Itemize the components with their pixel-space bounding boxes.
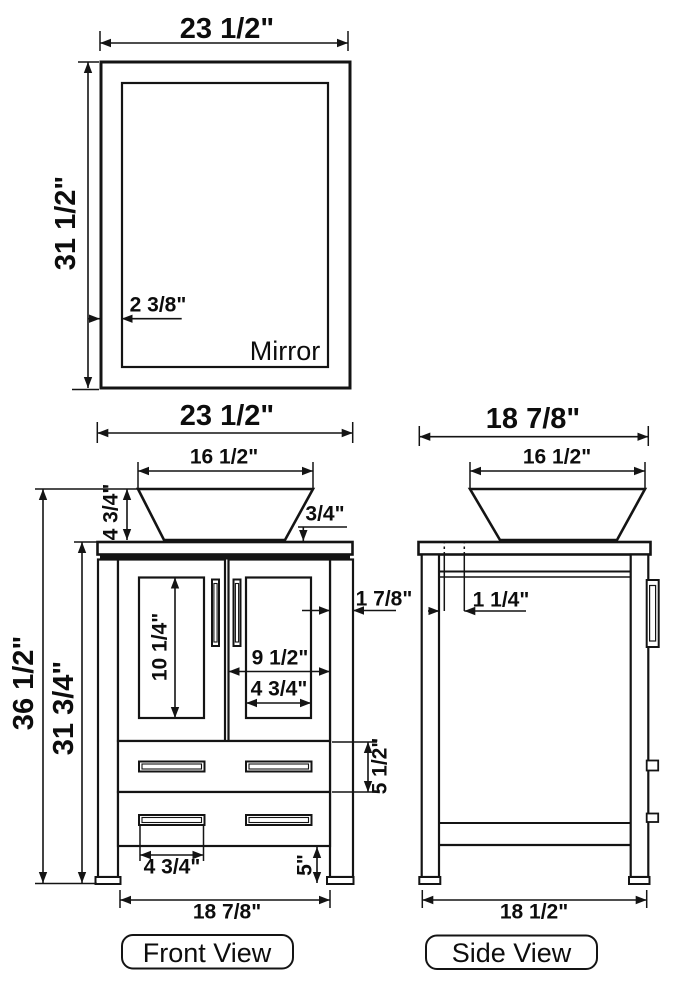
front-sink-width-dim: 16 1/2": [190, 446, 258, 469]
mirror-height-dim: 31 1/2": [50, 176, 82, 270]
front-panel-height-dim: 10 1/4": [149, 613, 172, 681]
mirror-label: Mirror: [250, 336, 320, 366]
front-drawer-height-dim: 5 1/2": [369, 738, 392, 795]
mirror-inner-frame: [122, 83, 328, 367]
side-view-caption: Side View: [452, 938, 572, 968]
right-leg-front: [330, 560, 353, 878]
vessel-sink-side: [470, 489, 645, 540]
front-base-width-dim: 18 7/8": [193, 901, 261, 924]
front-stile-width-dim: 1 7/8": [356, 588, 413, 611]
side-overall-depth-dim: 18 7/8": [486, 403, 580, 435]
front-cabinet-height-dim: 31 3/4": [48, 661, 80, 755]
right-foot-front: [327, 877, 354, 884]
front-drawer-handle-width-dim: 4 3/4": [144, 856, 201, 879]
drawer-handle-profile: [647, 814, 659, 823]
countertop-front: [98, 542, 353, 555]
mirror-width-dim: 23 1/2": [180, 13, 274, 45]
vanity-dimension-diagram: 23 1/2" 31 1/2" 2 3/8" Mirror 23 1/2" 16…: [0, 0, 678, 990]
mirror-drawing: 23 1/2" 31 1/2" 2 3/8" Mirror: [50, 13, 350, 390]
left-foot-front: [96, 877, 121, 884]
countertop-side: [419, 542, 651, 555]
drawer-handle-inner: [142, 818, 202, 823]
side-view-drawing: 18 7/8" 16 1/2" 1 1/4" 18 1/2": [419, 403, 659, 969]
front-countertop-thickness-dim: 3/4": [305, 503, 344, 526]
front-view-drawing: 23 1/2" 16 1/2" 4 3/4" 3/4": [8, 400, 412, 969]
side-back-inset-dim: 1 1/4": [473, 589, 530, 612]
right-door-handle-inner: [235, 584, 238, 643]
left-door-handle-inner: [214, 584, 217, 643]
side-sink-depth-dim: 16 1/2": [523, 446, 591, 469]
back-foot-side: [419, 877, 440, 884]
side-base-depth-dim: 18 1/2": [500, 901, 568, 924]
drawer-handle-profile: [647, 761, 659, 771]
vessel-sink-front: [138, 489, 313, 540]
front-foot-side: [629, 877, 650, 884]
drawer-handle-inner: [249, 818, 309, 823]
drawer-handle-inner: [142, 764, 202, 769]
front-overall-width-dim: 23 1/2": [180, 400, 274, 432]
front-door-width-dim: 9 1/2": [252, 647, 309, 670]
front-panel-width-dim: 4 3/4": [251, 678, 308, 701]
front-view-caption: Front View: [143, 938, 272, 968]
left-leg-front: [98, 560, 118, 878]
front-leg-side: [631, 555, 649, 878]
mirror-frame-width-dim: 2 3/8": [130, 294, 187, 317]
door-handle-profile-inner: [650, 586, 656, 642]
drawer-handle-inner: [249, 764, 309, 769]
front-sink-height-dim: 4 3/4": [100, 484, 123, 541]
back-leg-side: [422, 555, 439, 878]
front-overall-height-dim: 36 1/2": [8, 636, 40, 730]
technical-drawing: 23 1/2" 31 1/2" 2 3/8" Mirror 23 1/2" 16…: [0, 0, 678, 990]
front-leg-height-dim: 5": [294, 854, 317, 876]
